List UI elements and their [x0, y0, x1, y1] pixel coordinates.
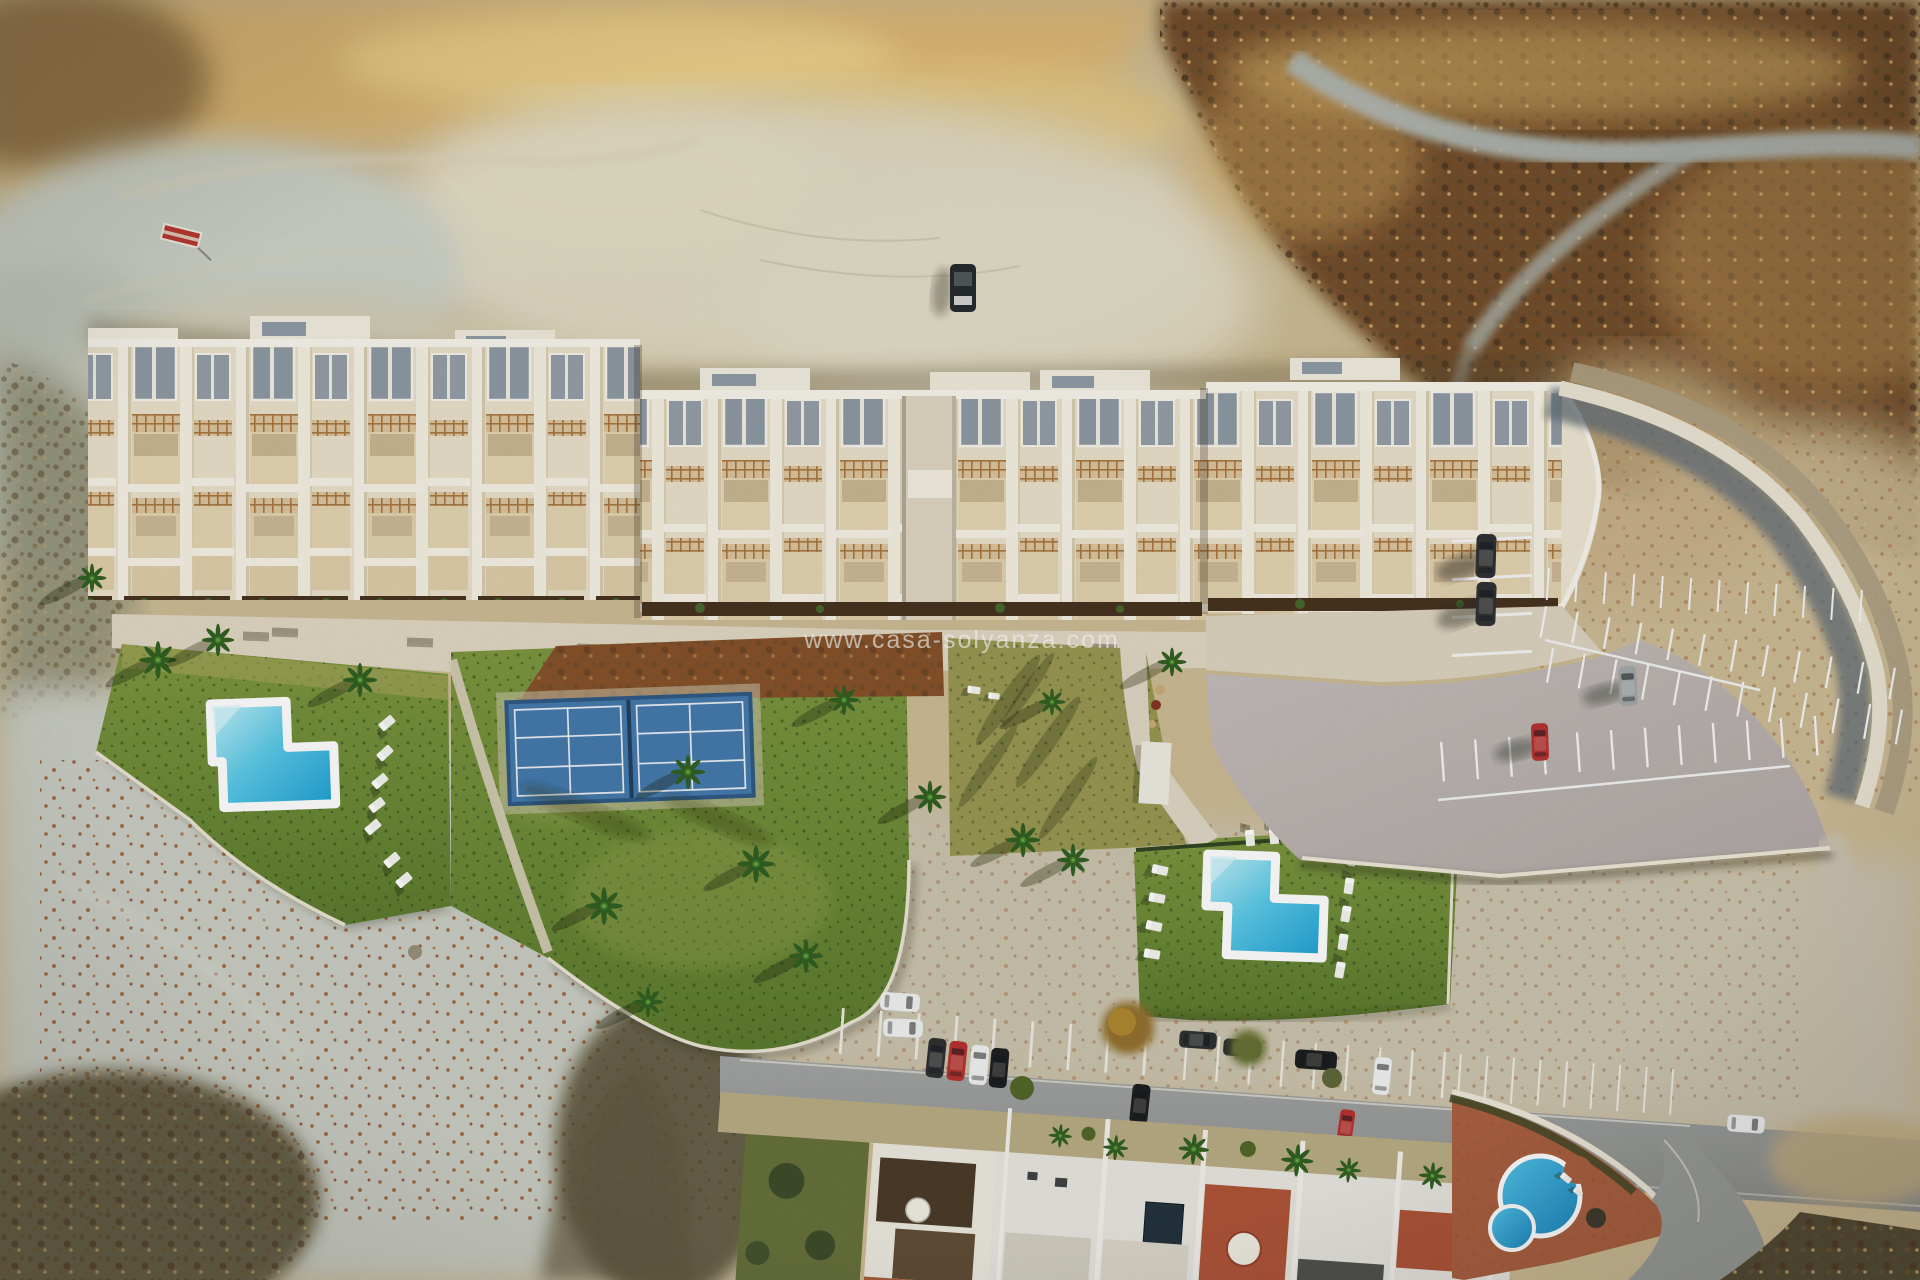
- vignette: [0, 0, 1920, 1280]
- aerial-render: www.casa-solyanza.com: [0, 0, 1920, 1280]
- aerial-photo: www.casa-solyanza.com: [0, 0, 1920, 1280]
